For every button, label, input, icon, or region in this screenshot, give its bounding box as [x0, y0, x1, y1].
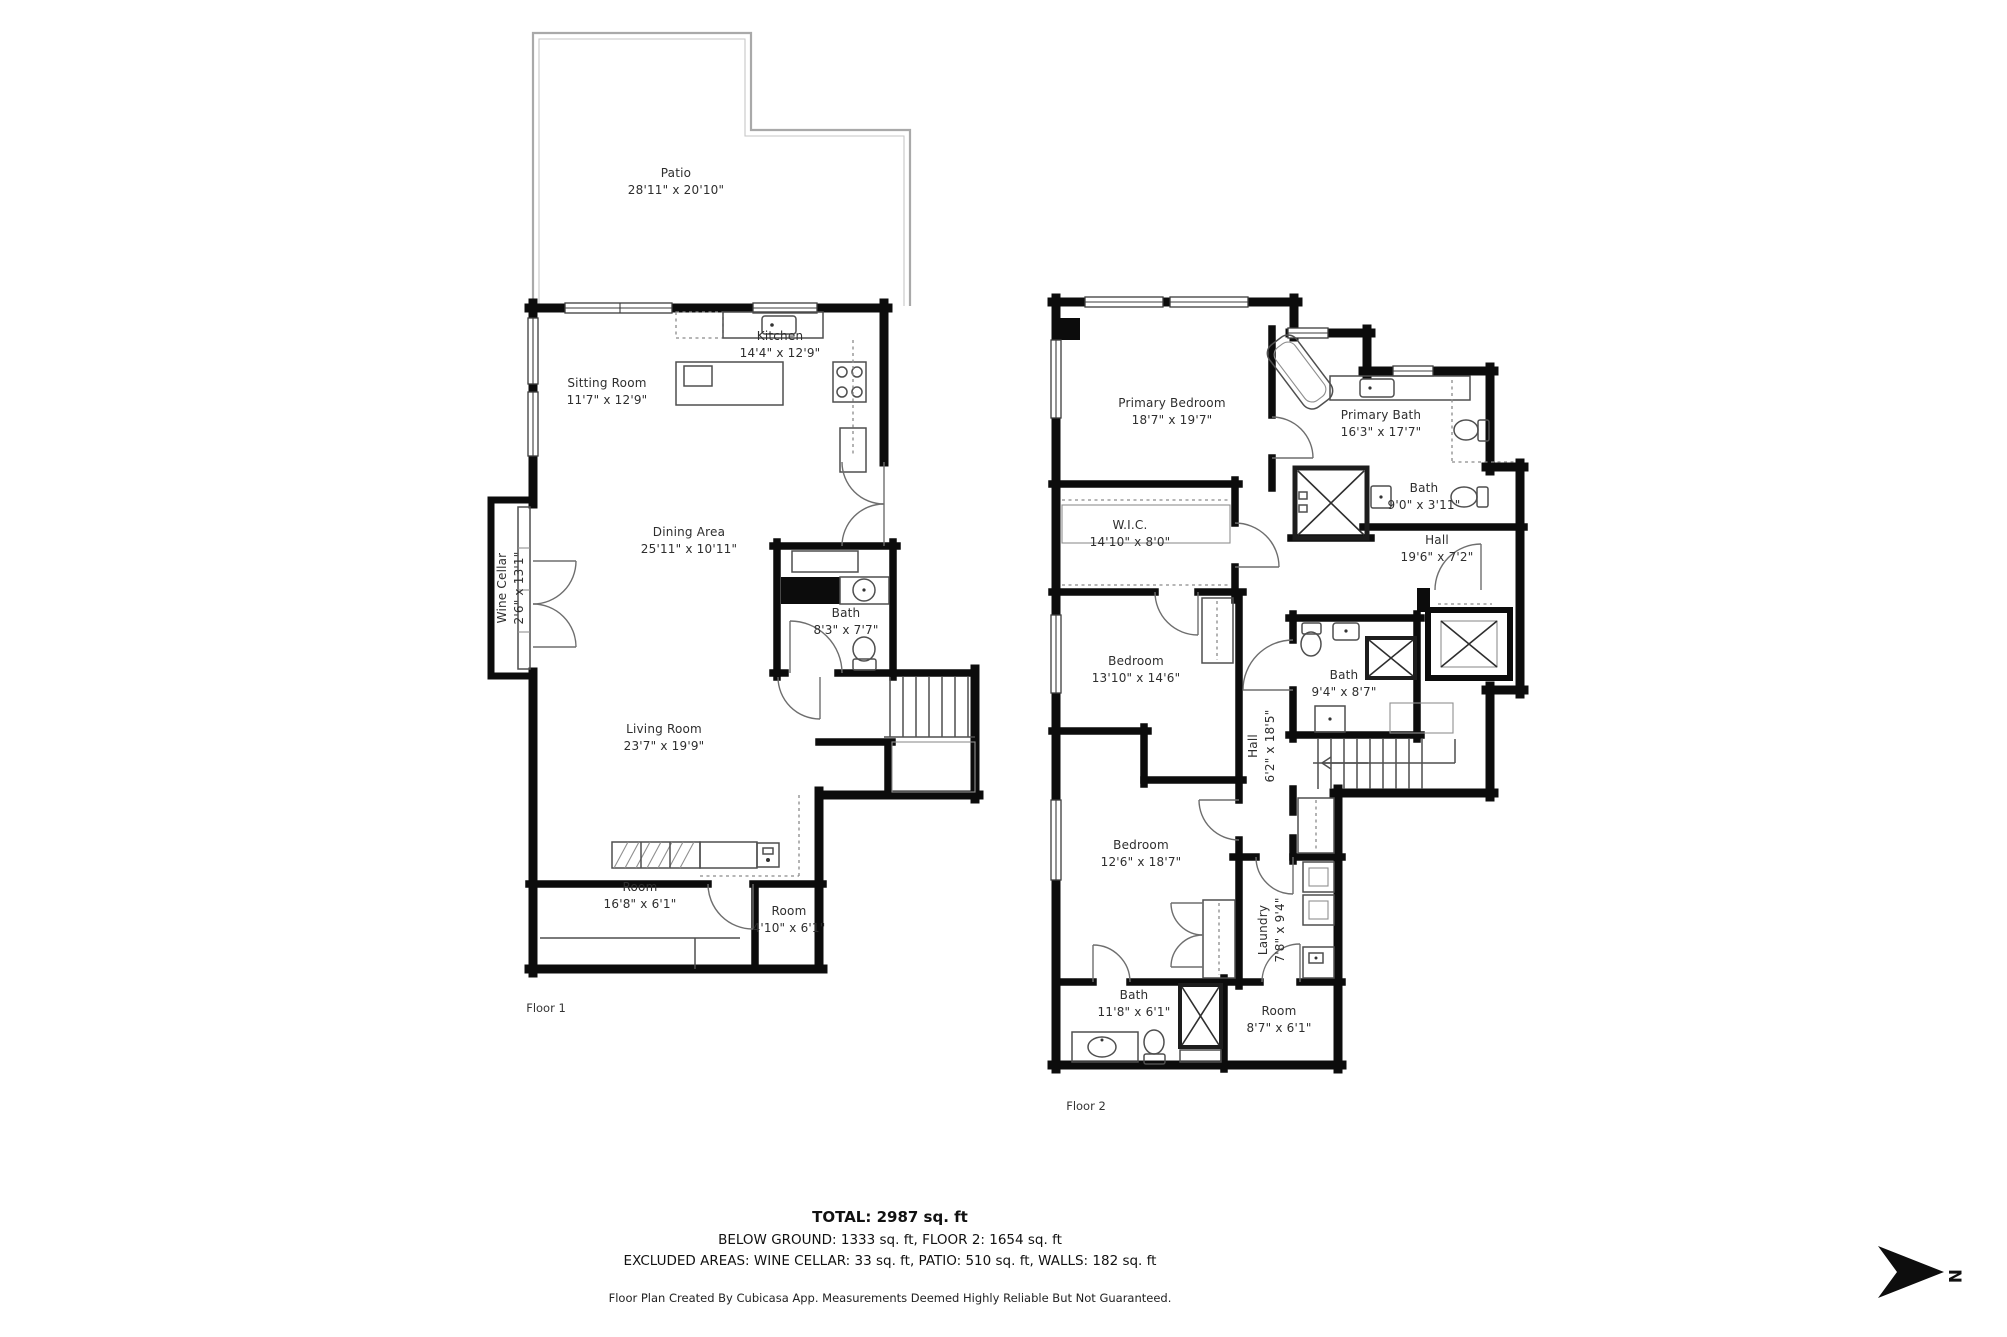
elevator-shaft: [1428, 604, 1510, 678]
patio-outline: [533, 33, 910, 306]
summary-total: TOTAL: 2987 sq. ft: [0, 1208, 1780, 1226]
primary-bath-fixtures: [1263, 331, 1516, 462]
summary-areas: BELOW GROUND: 1333 sq. ft, FLOOR 2: 1654…: [0, 1232, 1780, 1248]
hatched-strip: [612, 795, 799, 876]
summary-excluded: EXCLUDED AREAS: WINE CELLAR: 33 sq. ft, …: [0, 1253, 1780, 1269]
floor1-plan: [491, 33, 979, 973]
floor2-plan: [1051, 297, 1524, 1069]
north-letter: N: [1944, 1269, 1964, 1283]
bath-90-fixtures: [1371, 486, 1488, 508]
floor2-caption: Floor 2: [1066, 1099, 1106, 1113]
bath-94-fixtures: [1243, 623, 1415, 732]
bath1-fixtures: [781, 551, 889, 673]
stairs-floor2: [1313, 703, 1455, 789]
floor-plan-page: N Patio28'11" x 20'10"Kitchen14'4" x 12'…: [0, 0, 2007, 1337]
shower-box: [1295, 468, 1367, 538]
kitchen-fixtures: [676, 312, 866, 472]
floor-plan-drawing: N: [0, 0, 2007, 1337]
disclaimer-note: Floor Plan Created By Cubicasa App. Meas…: [0, 1291, 1780, 1305]
floor1-caption: Floor 1: [526, 1001, 566, 1015]
wine-cellar-doors: [533, 561, 576, 647]
north-compass: N: [1878, 1246, 1964, 1298]
stairs-floor1: [778, 677, 975, 792]
bath-118-fixtures: [1072, 985, 1221, 1064]
north-arrow-icon: [1878, 1246, 1944, 1298]
laundry-fixtures: [1303, 862, 1334, 978]
